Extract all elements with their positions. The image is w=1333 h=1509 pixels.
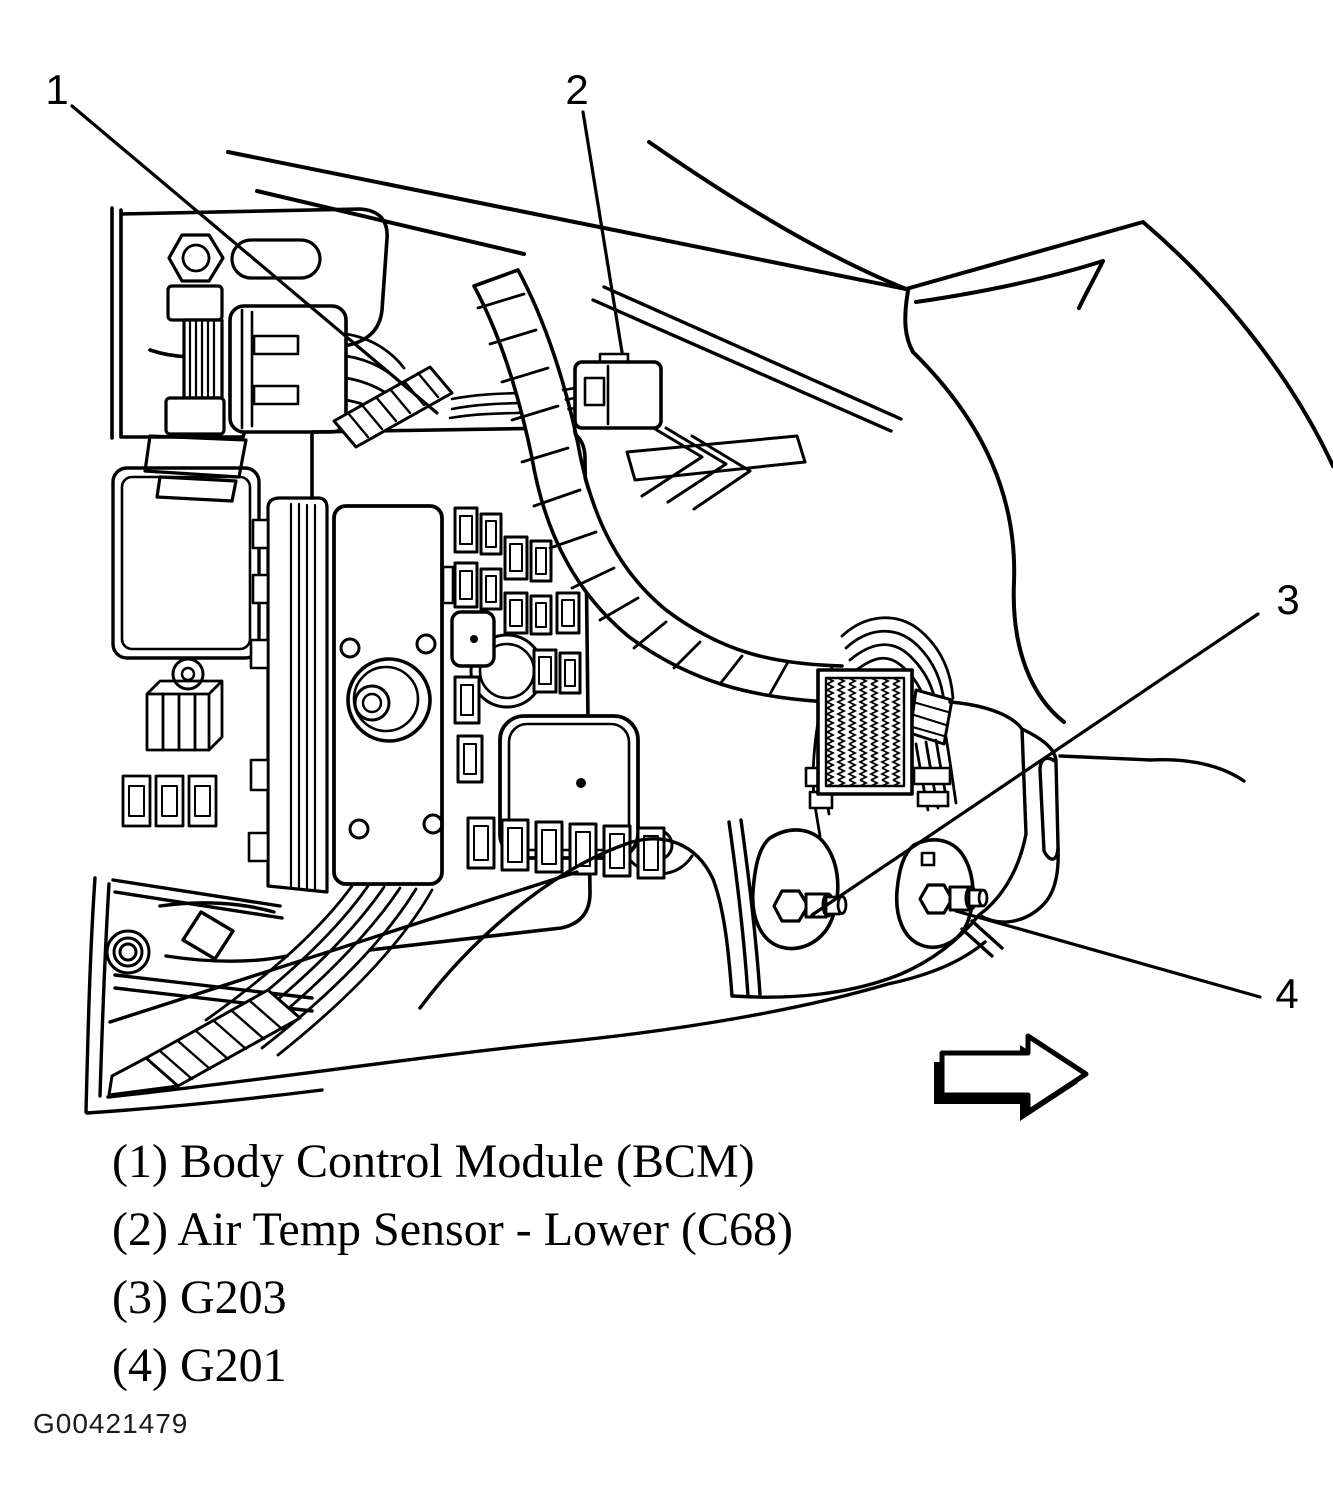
g203-plate — [753, 830, 838, 949]
grommet-center — [182, 668, 194, 680]
dash-front-curve — [649, 142, 1333, 466]
grommet — [173, 659, 203, 689]
ground-stud-g201 — [897, 840, 987, 947]
mesh-module — [818, 670, 912, 794]
callout-4-number: 4 — [1275, 970, 1298, 1017]
ribbon-bottom-cap — [166, 398, 224, 434]
sensor-bracket — [627, 420, 805, 509]
module-tab — [443, 567, 453, 603]
bcm-mount-rail — [123, 498, 354, 892]
small-connector-box — [147, 681, 222, 750]
taped-harness-lower — [109, 990, 300, 1095]
hex-bolt — [169, 235, 223, 281]
floor-bolt — [107, 931, 149, 973]
legend: (1) Body Control Module (BCM) (2) Air Te… — [112, 1128, 793, 1400]
small-fuse-row — [123, 776, 216, 826]
bcm-assembly — [334, 506, 692, 884]
g203-hex-nut — [774, 891, 808, 921]
instrument-cluster-opening — [113, 468, 259, 658]
pedal-bracket-diamond — [160, 903, 287, 961]
g201-hex-nut — [920, 885, 952, 913]
callout-4-leader — [956, 911, 1260, 997]
direction-arrow-icon — [934, 1036, 1086, 1121]
legend-item-4: (4) G201 — [112, 1332, 793, 1400]
connector-body — [230, 306, 346, 432]
callout-3-number: 3 — [1276, 576, 1299, 623]
legend-item-3: (3) G203 — [112, 1264, 793, 1332]
legend-item-1: (1) Body Control Module (BCM) — [112, 1128, 793, 1196]
connector-tab-2 — [254, 386, 298, 404]
connector-c68-body — [575, 362, 661, 428]
callout-1-number: 1 — [45, 66, 68, 113]
rail-outline — [268, 498, 327, 892]
legend-item-2: (2) Air Temp Sensor - Lower (C68) — [112, 1196, 793, 1264]
bracket-slot — [232, 240, 320, 278]
figure-id: G00421479 — [33, 1408, 188, 1440]
diagram-page: 1 2 3 4 (1) Body Control Module (BCM) (2… — [0, 0, 1333, 1509]
connector-tab-1 — [254, 336, 298, 354]
callout-2-number: 2 — [565, 66, 588, 113]
ribbon-top-cap — [168, 286, 222, 320]
dash-top-diagonal — [228, 152, 906, 289]
ground-stud-g203 — [753, 830, 846, 949]
relay-dot — [576, 778, 586, 788]
square-module-dot — [470, 635, 478, 643]
mesh-texture — [826, 678, 904, 786]
console-contour — [913, 352, 1064, 722]
